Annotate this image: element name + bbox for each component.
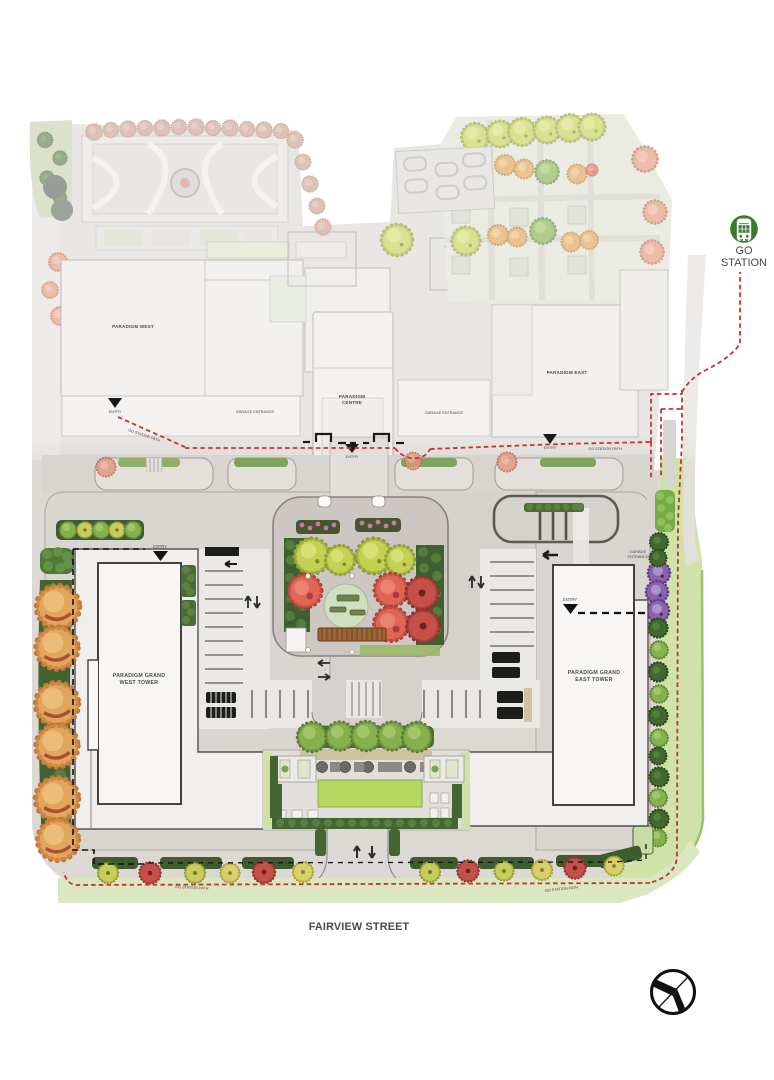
svg-text:CENTRE: CENTRE: [342, 400, 362, 405]
svg-text:EAST TOWER: EAST TOWER: [575, 677, 613, 683]
svg-text:ENTRY: ENTRY: [544, 446, 557, 450]
svg-text:PARADIGM EAST: PARADIGM EAST: [547, 370, 588, 375]
svg-text:GARAGE ENTRANCE: GARAGE ENTRANCE: [425, 411, 464, 415]
svg-text:ENTRANCE: ENTRANCE: [628, 555, 649, 559]
svg-text:GARAGE: GARAGE: [630, 550, 647, 554]
svg-text:PARADIGM: PARADIGM: [339, 394, 365, 399]
svg-text:GO: GO: [735, 245, 753, 257]
svg-text:GARAGE ENTRANCE: GARAGE ENTRANCE: [236, 410, 275, 414]
svg-text:WEST TOWER: WEST TOWER: [120, 680, 159, 686]
svg-text:ENTRY: ENTRY: [563, 597, 577, 602]
svg-text:PARADIGM GRAND: PARADIGM GRAND: [113, 673, 166, 679]
svg-text:ENTRY: ENTRY: [109, 410, 122, 414]
svg-text:FAIRVIEW STREET: FAIRVIEW STREET: [309, 921, 410, 933]
svg-text:STATION: STATION: [721, 257, 767, 269]
svg-text:ENTRY: ENTRY: [346, 455, 359, 459]
svg-text:PARADIGM WEST: PARADIGM WEST: [112, 324, 154, 329]
svg-text:ENTRY: ENTRY: [153, 544, 167, 549]
svg-text:GO STATION PATH: GO STATION PATH: [588, 447, 622, 451]
svg-text:PARADIGM GRAND: PARADIGM GRAND: [568, 670, 621, 676]
